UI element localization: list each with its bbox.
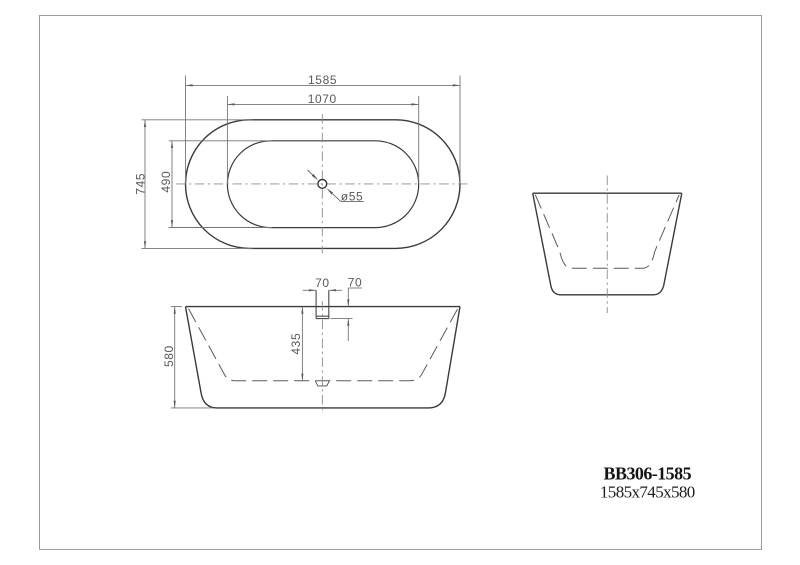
svg-text:435: 435: [289, 333, 303, 355]
svg-text:70: 70: [315, 276, 330, 290]
svg-text:1070: 1070: [308, 92, 337, 106]
svg-text:ø55: ø55: [341, 189, 363, 203]
svg-text:70: 70: [348, 275, 363, 289]
svg-text:1585x745x580: 1585x745x580: [600, 483, 695, 502]
svg-text:BB306-1585: BB306-1585: [604, 464, 692, 484]
svg-text:745: 745: [134, 173, 148, 195]
svg-text:1585: 1585: [308, 73, 337, 87]
svg-text:580: 580: [162, 345, 176, 367]
svg-text:490: 490: [159, 171, 173, 193]
